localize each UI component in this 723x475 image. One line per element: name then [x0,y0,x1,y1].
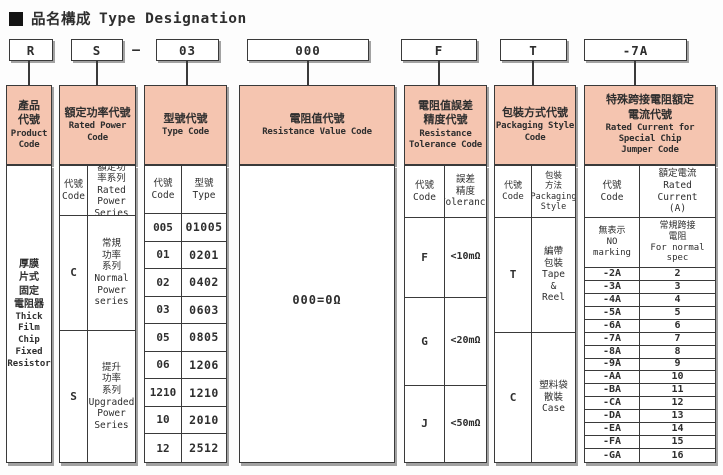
header-tolerance-cjk: 電阻值誤差 精度代號 [418,99,473,128]
tolerance-table: 代號 Code 誤差 精度 Tolerance F <10mΩ G <20mΩ … [404,165,487,463]
jumper-row-amps: 2 [640,268,715,281]
tolerance-subheader-code: 代號 Code [405,166,445,218]
type-row-code: 05 [145,324,182,352]
jumper-row-code: -8A [585,346,640,359]
page: 品名構成 Type Designation R S — 03 000 F T -… [0,0,723,475]
header-tolerance-code: 電阻值誤差 精度代號 Resistance Tolerance Code [404,85,487,165]
jumper-row-code: -7A [585,333,640,346]
jumper-row-amps: 13 [640,410,715,423]
header-product-en: Product Code [11,129,48,152]
power-row-code: S [60,331,88,462]
type-row-code: 06 [145,352,182,380]
connector-line [532,61,534,86]
type-row-type: 0805 [182,324,226,352]
type-row-code: 12 [145,434,182,462]
power-subheader-code: 代號 Code [60,166,88,216]
type-row-type: 0402 [182,269,226,297]
jumper-row-code: -GA [585,449,640,462]
type-row-code: 02 [145,269,182,297]
header-power-cjk: 額定功率代號 [65,106,131,120]
jumper-row-code: -5A [585,307,640,320]
jumper-row-code: -4A [585,294,640,307]
tolerance-row-code: J [405,386,445,462]
type-row-code: 03 [145,297,182,325]
power-row-desc: 常規 功率 系列 Normal Power series [88,216,135,331]
header-power-en: Rated Power Code [69,121,126,144]
jumper-row-code: -6A [585,320,640,333]
packaging-row-desc: 塑料袋 散裝 Case [532,333,575,462]
tolerance-subheader-tol: 誤差 精度 Tolerance [445,166,486,218]
code-box-tolerance: F [401,39,477,61]
type-row-code: 01 [145,242,182,270]
type-subheader-code: 代號 Code [145,166,182,214]
connector-line [634,61,636,86]
square-bullet-icon [9,12,23,26]
jumper-row-code: -DA [585,410,640,423]
jumper-row-amps: 14 [640,423,715,436]
jumper-row-code: -AA [585,371,640,384]
packaging-row-code: C [495,333,532,462]
type-row-type: 0201 [182,242,226,270]
jumper-current-table: 代號 Code 額定電流 Rated Current (A) 無表示 NO ma… [584,165,716,463]
header-resistance-en: Resistance Value Code [262,127,372,138]
header-type-code: 型號代號 Type Code [144,85,227,165]
header-resistance-cjk: 電阻值代號 [290,112,345,126]
type-subheader-type: 型號 Type [182,166,226,214]
power-row-desc: 提升 功率 系列 Upgraded Power Series [88,331,135,462]
resistance-value-cell: 000=0Ω [239,165,395,463]
type-row-type: 1206 [182,352,226,380]
jumper-row-amps: 6 [640,320,715,333]
packaging-subheader-style: 包裝 方法 Packaging Style [532,166,575,218]
type-code-table: 代號 Code 型號 Type 005 01005 01 0201 02 040… [144,165,227,463]
code-box-resistance: 000 [247,39,369,61]
jumper-special-desc: 常規跨接 電阻 For normal spec [640,218,715,268]
header-product-code: 產品 代號 Product Code [6,85,52,165]
packaging-row-desc: 編帶 包裝 Tape & Reel [532,218,575,333]
header-product-cjk: 產品 代號 [18,99,40,128]
jumper-row-code: -BA [585,384,640,397]
jumper-row-code: -9A [585,359,640,372]
type-row-type: 2010 [182,407,226,435]
tolerance-row-code: F [405,218,445,298]
jumper-row-amps: 7 [640,333,715,346]
resistance-value-text: 000=0Ω [292,293,341,307]
header-packaging-cjk: 包裝方式代號 [502,106,568,120]
tolerance-row-value: <20mΩ [445,298,486,386]
jumper-row-amps: 11 [640,384,715,397]
code-box-packaging: T [500,39,567,61]
rated-power-table: 代號 Code 額定功 率系列 Rated Power Series C 常規 … [59,165,136,463]
jumper-row-amps: 12 [640,397,715,410]
page-title: 品名構成 Type Designation [9,8,247,29]
tolerance-row-code: G [405,298,445,386]
jumper-row-code: -EA [585,423,640,436]
jumper-row-amps: 15 [640,436,715,449]
jumper-row-code: -3A [585,281,640,294]
connector-line [438,61,440,86]
packaging-row-code: T [495,218,532,333]
jumper-row-amps: 9 [640,359,715,372]
code-box-jumper: -7A [584,39,687,61]
header-resistance-value-code: 電阻值代號 Resistance Value Code [239,85,395,165]
tolerance-row-value: <50mΩ [445,386,486,462]
header-packaging-en: Packaging Style Code [496,121,574,144]
product-description-cell: 厚膜 片式 固定 電阻器 Thick Film Chip Fixed Resis… [6,165,52,463]
product-description-en: Thick Film Chip Fixed Resistor [7,312,50,370]
jumper-row-amps: 16 [640,449,715,462]
code-box-power: S [71,39,123,61]
header-rated-power-code: 額定功率代號 Rated Power Code [59,85,136,165]
type-row-code: 005 [145,214,182,242]
jumper-row-amps: 4 [640,294,715,307]
header-jumper-cjk: 特殊跨接電阻額定 電流代號 [606,93,694,122]
packaging-subheader-code: 代號 Code [495,166,532,218]
header-jumper-code: 特殊跨接電阻額定 電流代號 Rated Current for Special … [584,85,716,165]
power-row-code: C [60,216,88,331]
jumper-subheader-current: 額定電流 Rated Current (A) [640,166,715,218]
jumper-row-amps: 5 [640,307,715,320]
jumper-row-amps: 3 [640,281,715,294]
connector-line [307,61,309,86]
header-type-cjk: 型號代號 [164,112,208,126]
power-subheader-series: 額定功 率系列 Rated Power Series [88,166,135,216]
header-type-en: Type Code [162,127,209,138]
tolerance-row-value: <10mΩ [445,218,486,298]
type-row-type: 01005 [182,214,226,242]
type-row-code: 1210 [145,379,182,407]
jumper-row-code: -CA [585,397,640,410]
type-row-type: 0603 [182,297,226,325]
jumper-subheader-code: 代號 Code [585,166,640,218]
jumper-row-code: -2A [585,268,640,281]
connector-line [28,61,30,86]
product-description-cjk: 厚膜 片式 固定 電阻器 [14,258,44,312]
jumper-special-code: 無表示 NO marking [585,218,640,268]
header-packaging-style-code: 包裝方式代號 Packaging Style Code [494,85,576,165]
type-row-type: 1210 [182,379,226,407]
page-title-en: Type Designation [99,11,247,27]
connector-line [186,61,188,86]
jumper-row-amps: 10 [640,371,715,384]
header-jumper-en: Rated Current for Special Chip Jumper Co… [606,123,695,157]
type-row-type: 2512 [182,434,226,462]
packaging-table: 代號 Code 包裝 方法 Packaging Style T 編帶 包裝 Ta… [494,165,576,463]
header-tolerance-en: Resistance Tolerance Code [409,129,482,152]
jumper-row-code: -FA [585,436,640,449]
connector-line [96,61,98,86]
dash-separator: — [127,39,145,61]
code-box-type: 03 [156,39,219,61]
code-box-product: R [9,39,53,61]
jumper-row-amps: 8 [640,346,715,359]
page-title-cjk: 品名構成 [31,8,91,29]
type-row-code: 10 [145,407,182,435]
